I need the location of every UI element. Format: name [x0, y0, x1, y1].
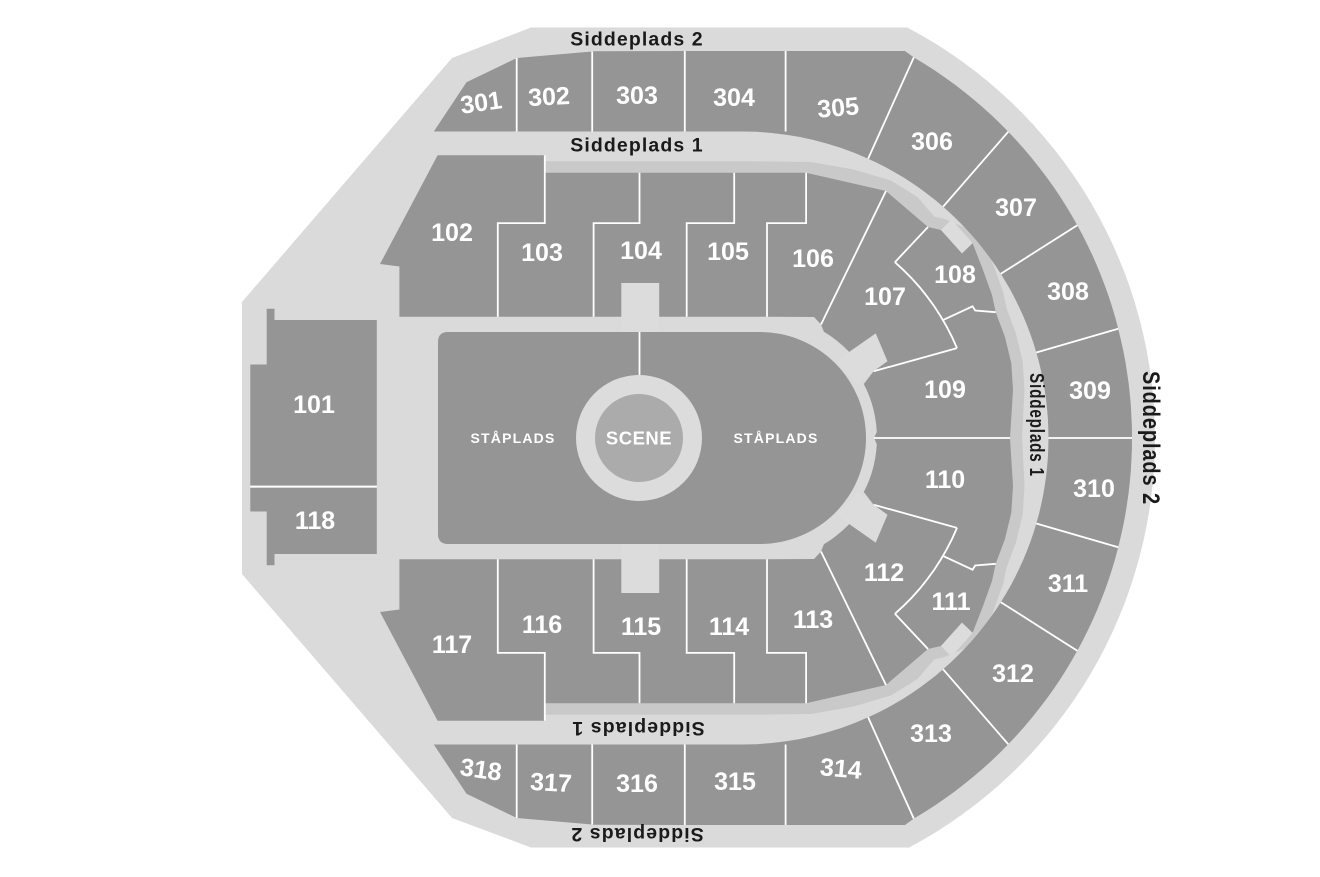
svg-text:116: 116	[522, 611, 562, 639]
svg-text:301: 301	[459, 86, 504, 120]
svg-text:104: 104	[620, 237, 662, 265]
svg-text:Siddeplads 2: Siddeplads 2	[570, 29, 704, 51]
svg-text:306: 306	[911, 128, 953, 156]
svg-text:313: 313	[910, 720, 952, 748]
svg-text:310: 310	[1073, 475, 1115, 503]
svg-text:101: 101	[293, 391, 335, 419]
svg-text:107: 107	[864, 283, 906, 311]
svg-text:303: 303	[616, 82, 658, 110]
svg-text:103: 103	[521, 239, 563, 267]
svg-text:112: 112	[864, 559, 904, 587]
svg-text:Siddeplads 1: Siddeplads 1	[570, 135, 704, 157]
svg-text:Siddeplads 1: Siddeplads 1	[571, 717, 705, 739]
svg-text:STÅPLADS: STÅPLADS	[470, 430, 555, 446]
svg-text:115: 115	[621, 613, 661, 641]
svg-text:305: 305	[816, 92, 860, 124]
svg-text:312: 312	[992, 660, 1034, 688]
svg-text:316: 316	[616, 770, 658, 798]
svg-text:307: 307	[995, 194, 1037, 222]
svg-text:302: 302	[527, 82, 570, 112]
svg-text:315: 315	[714, 768, 756, 796]
svg-text:Siddeplads 1: Siddeplads 1	[1025, 373, 1047, 477]
svg-text:114: 114	[709, 613, 749, 641]
svg-text:111: 111	[932, 588, 971, 616]
svg-text:308: 308	[1047, 278, 1089, 306]
svg-text:311: 311	[1048, 570, 1088, 598]
svg-text:314: 314	[819, 753, 863, 785]
svg-text:118: 118	[295, 507, 335, 535]
svg-text:SCENE: SCENE	[606, 428, 672, 449]
svg-text:105: 105	[707, 238, 749, 266]
svg-text:Siddeplads 2: Siddeplads 2	[1137, 371, 1164, 505]
svg-text:102: 102	[431, 219, 473, 247]
svg-text:110: 110	[925, 466, 965, 494]
svg-text:304: 304	[713, 84, 755, 112]
svg-text:317: 317	[529, 768, 572, 798]
svg-text:309: 309	[1069, 377, 1111, 405]
svg-text:117: 117	[432, 631, 472, 659]
svg-text:108: 108	[934, 261, 976, 289]
svg-text:STÅPLADS: STÅPLADS	[733, 430, 818, 446]
svg-text:Siddeplads 2: Siddeplads 2	[570, 823, 704, 845]
svg-text:106: 106	[792, 245, 834, 273]
svg-text:113: 113	[793, 606, 833, 634]
svg-text:318: 318	[458, 753, 503, 787]
svg-text:109: 109	[924, 376, 966, 404]
